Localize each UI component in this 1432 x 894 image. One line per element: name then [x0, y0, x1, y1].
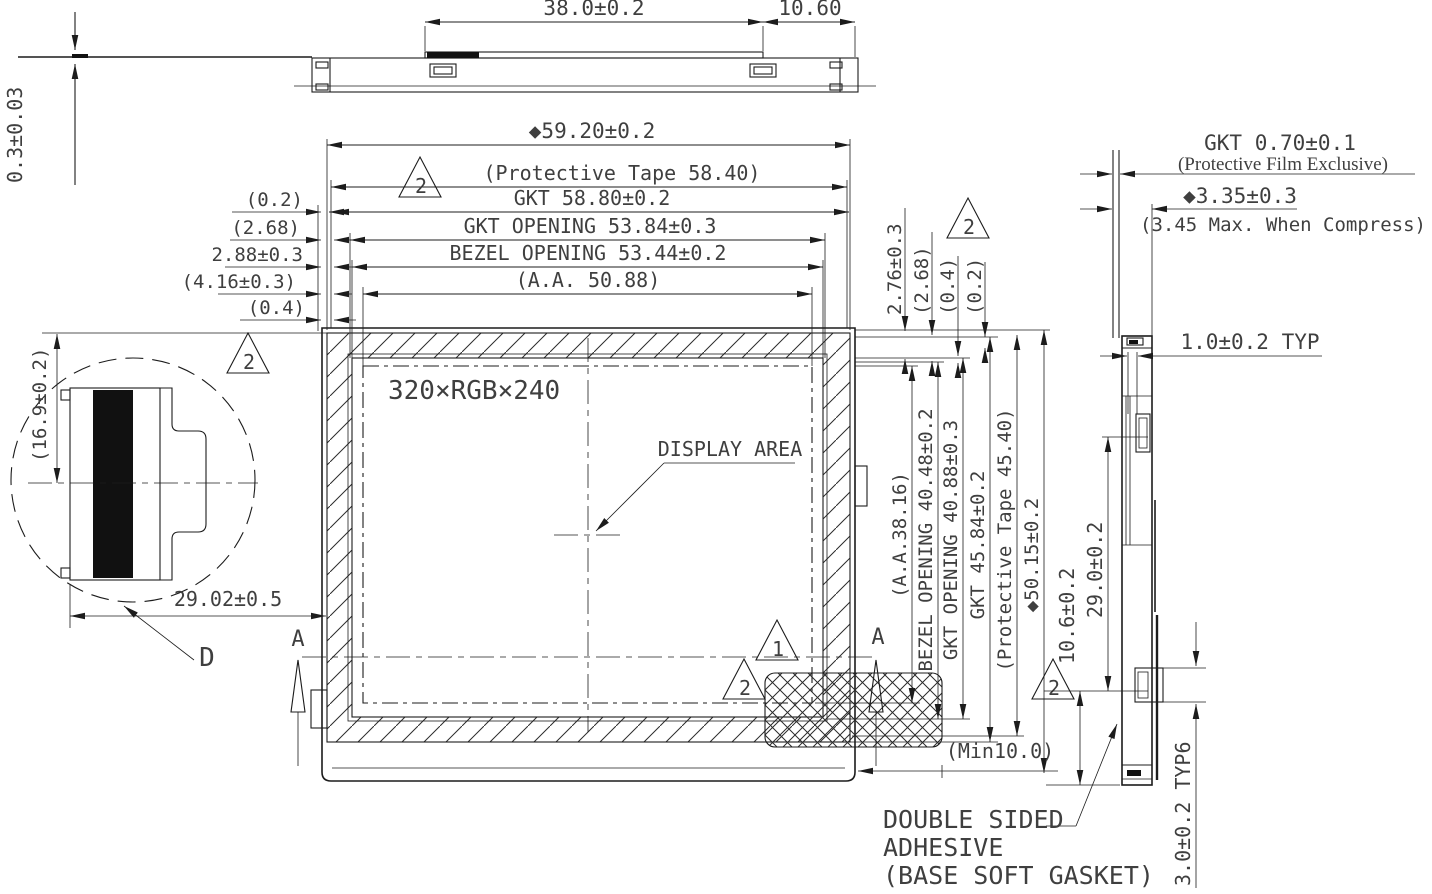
- revision-flag-column: 2: [1032, 659, 1074, 700]
- top-view: 38.0±0.2 10.60 0.3±0.03: [3, 0, 876, 185]
- revision-flag-patch-2: 2: [723, 659, 765, 700]
- svg-text:2: 2: [963, 215, 975, 239]
- side-view: GKT 0.70±0.1 (Protective Film Exclusive)…: [883, 131, 1426, 890]
- drawing-canvas: 38.0±0.2 10.60 0.3±0.03 320×RGB×240 DISP…: [0, 0, 1432, 894]
- display-area-label: DISPLAY AREA: [658, 437, 803, 461]
- dim-film-thickness: 0.3±0.03: [3, 87, 27, 183]
- dim-10-6: 10.6±0.2: [1055, 568, 1079, 664]
- dim-left-4-16: (4.16±0.3): [182, 271, 296, 293]
- dim-connector-height: (16.9±0.2): [29, 348, 51, 462]
- note-compress: (3.45 Max. When Compress): [1140, 214, 1426, 236]
- resolution-label: 320×RGB×240: [388, 376, 560, 406]
- left-tab: [311, 690, 327, 728]
- dim-left-0-2: (0.2): [246, 189, 303, 211]
- dim-connector-width: 29.02±0.5: [174, 587, 282, 611]
- dim-tape-width: (Protective Tape 58.40): [484, 161, 761, 185]
- svg-text:1: 1: [772, 637, 784, 661]
- dim-right-2-76: 2.76±0.3: [884, 223, 906, 315]
- dim-v-gkt-opening: GKT OPENING 40.88±0.3: [940, 420, 962, 660]
- bezel-opening: [352, 358, 823, 717]
- revision-flag-tape: 2: [399, 157, 441, 198]
- dim-left-2-88: 2.88±0.3: [211, 244, 303, 266]
- dim-tab-typ6: 3.0±0.2 TYP6: [1171, 742, 1195, 887]
- dim-right-0-4: (0.4): [937, 258, 959, 315]
- engineering-drawing: 38.0±0.2 10.60 0.3±0.03 320×RGB×240 DISP…: [0, 0, 1432, 894]
- dim-right-2-68: (2.68): [911, 246, 933, 315]
- note-protective-film: (Protective Film Exclusive): [1178, 154, 1388, 175]
- svg-text:A: A: [871, 625, 884, 650]
- dim-wall-typ: 1.0±0.2 TYP: [1180, 330, 1319, 354]
- dim-v-total: ◆50.15±0.2: [1021, 498, 1043, 612]
- dim-v-aa: (A.A.38.16): [889, 472, 911, 598]
- detail-label-d: D: [199, 643, 215, 673]
- svg-text:2: 2: [1048, 676, 1060, 700]
- svg-text:2: 2: [243, 350, 255, 374]
- section-marker-left: A: [291, 627, 305, 766]
- active-area-outline: [363, 366, 812, 703]
- note-adhesive-line1: DOUBLE SIDED: [883, 805, 1064, 834]
- connector-contact-bar: [93, 390, 133, 578]
- detail-view-d: (16.9±0.2) 29.02±0.5 D: [11, 333, 327, 673]
- dim-left-2-68: (2.68): [231, 217, 300, 239]
- dim-gkt-thickness: GKT 0.70±0.1: [1204, 131, 1356, 155]
- dim-total-thickness: ◆3.35±0.3: [1183, 184, 1297, 208]
- dim-v-gkt: GKT 45.84±0.2: [967, 471, 989, 620]
- dim-bezel-opening: BEZEL OPENING 53.44±0.2: [450, 241, 727, 265]
- dim-min10: [858, 765, 1058, 778]
- display-area-leader: [596, 463, 795, 531]
- side-slot-top: [1136, 414, 1150, 452]
- dim-38: 38.0±0.2: [543, 0, 644, 20]
- dim-min10-label: (Min10.0): [946, 739, 1054, 763]
- revision-flag-left: 2: [227, 333, 269, 374]
- note-adhesive-line3: (BASE SOFT GASKET): [883, 861, 1154, 890]
- dim-aa-width: (A.A. 50.88): [516, 268, 661, 292]
- dim-v-bezel: BEZEL OPENING 40.48±0.2: [915, 408, 937, 671]
- connector-key-profile: [160, 388, 206, 580]
- side-slot-bottom: [1135, 668, 1163, 702]
- note-adhesive-line2: ADHESIVE: [883, 833, 1003, 862]
- dim-gkt-width: GKT 58.80±0.2: [514, 186, 671, 210]
- revision-flag-patch-1: 1: [756, 620, 798, 661]
- dim-10-60: 10.60: [778, 0, 841, 20]
- dim-v-tape: (Protective Tape 45.40): [994, 408, 1016, 671]
- revision-flag-top-right: 2: [947, 198, 989, 239]
- dim-right-0-2: (0.2): [964, 258, 986, 315]
- dim-left-0-4: (0.4): [248, 297, 305, 319]
- svg-text:2: 2: [739, 676, 751, 700]
- svg-text:A: A: [291, 627, 304, 652]
- right-tab: [855, 466, 867, 506]
- top-view-dimensions: [75, 12, 855, 185]
- front-view: 320×RGB×240 DISPLAY AREA ◆59.20±0: [182, 119, 1074, 781]
- dim-29: 29.0±0.2: [1083, 522, 1107, 618]
- svg-text:2: 2: [415, 174, 427, 198]
- dim-gkt-opening: GKT OPENING 53.84±0.3: [464, 214, 717, 238]
- dim-total-width: ◆59.20±0.2: [529, 119, 655, 143]
